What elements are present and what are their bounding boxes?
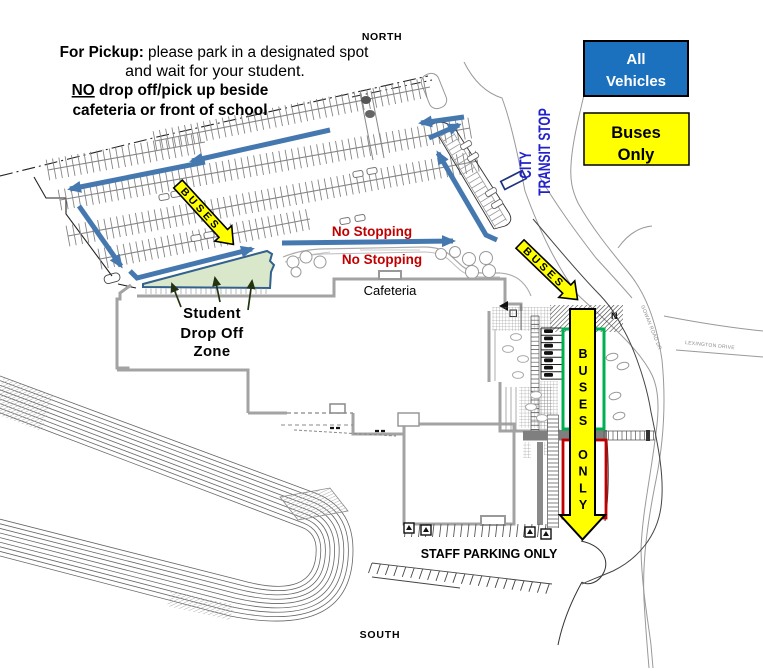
svg-text:LEXINGTON DRIVE: LEXINGTON DRIVE bbox=[685, 340, 736, 351]
svg-text:Y: Y bbox=[579, 498, 588, 512]
svg-text:TRANSIT STOP: TRANSIT STOP bbox=[536, 108, 554, 196]
svg-text:SOUTH: SOUTH bbox=[360, 629, 401, 641]
svg-text:Vehicles: Vehicles bbox=[606, 73, 666, 90]
svg-text:CITY: CITY bbox=[517, 151, 535, 178]
svg-text:Drop Off: Drop Off bbox=[180, 326, 243, 342]
svg-text:B: B bbox=[578, 347, 587, 361]
svg-text:STAFF PARKING ONLY: STAFF PARKING ONLY bbox=[421, 547, 558, 561]
svg-text:No Stopping: No Stopping bbox=[332, 224, 412, 239]
svg-text:N: N bbox=[578, 465, 587, 479]
svg-text:and wait for your student.: and wait for your student. bbox=[125, 63, 305, 80]
svg-text:BUSES: BUSES bbox=[178, 186, 223, 234]
svg-text:GOWAN ROAD DR: GOWAN ROAD DR bbox=[639, 305, 662, 351]
svg-text:U: U bbox=[578, 364, 587, 378]
svg-text:S: S bbox=[579, 414, 587, 428]
svg-text:NORTH: NORTH bbox=[362, 31, 402, 43]
svg-text:Zone: Zone bbox=[194, 344, 231, 360]
svg-text:E: E bbox=[579, 397, 587, 411]
svg-text:O: O bbox=[578, 448, 588, 462]
svg-text:Buses: Buses bbox=[611, 124, 661, 142]
svg-text:Cafeteria: Cafeteria bbox=[364, 283, 418, 298]
svg-text:Student: Student bbox=[183, 306, 241, 322]
svg-text:For Pickup: please park in a d: For Pickup: please park in a designated … bbox=[60, 44, 369, 61]
svg-text:L: L bbox=[579, 481, 587, 495]
svg-text:NO drop off/pick up beside: NO drop off/pick up beside bbox=[72, 82, 269, 99]
svg-text:cafeteria or front of school: cafeteria or front of school bbox=[73, 102, 268, 119]
svg-text:Only: Only bbox=[618, 146, 655, 164]
svg-text:All: All bbox=[626, 51, 645, 68]
svg-text:No Stopping: No Stopping bbox=[342, 252, 422, 267]
svg-text:S: S bbox=[579, 381, 587, 395]
